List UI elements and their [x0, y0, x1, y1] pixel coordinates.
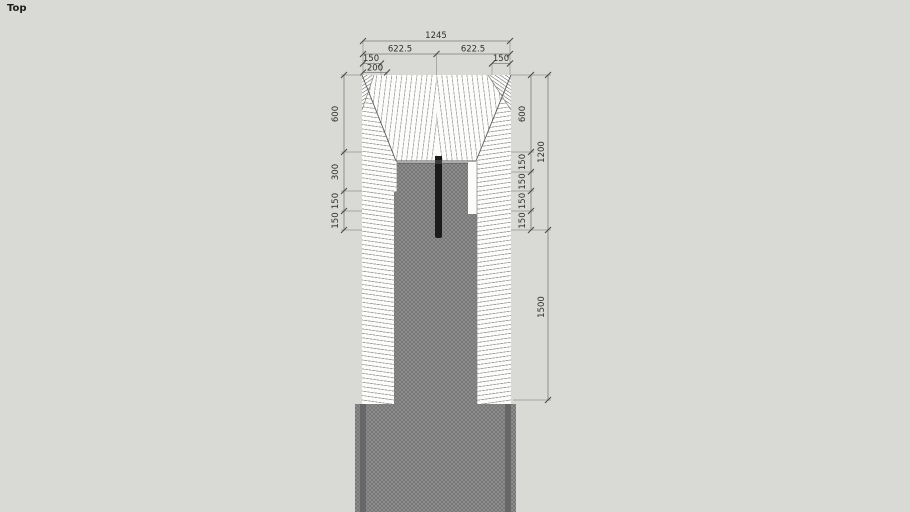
dim-left-600: 600 — [331, 106, 341, 122]
dim-half-left: 622.5 — [388, 45, 412, 55]
structure-edges — [362, 75, 511, 404]
dim-left-150a: 150 — [331, 193, 341, 209]
dim-right-1200: 1200 — [537, 141, 547, 163]
dim-edge-left-150: 150 — [363, 54, 379, 64]
dim-right-150d: 150 — [518, 212, 528, 228]
dim-right-150c: 150 — [518, 193, 528, 209]
viewport-canvas[interactable]: Top 1245 622.5 — [0, 0, 910, 512]
right-dimensions: 600 150 150 150 150 1200 1500 — [511, 72, 551, 403]
dim-right-150b: 150 — [518, 173, 528, 189]
dim-left-300: 300 — [331, 164, 341, 180]
dim-right-600: 600 — [518, 106, 528, 122]
dim-right-150a: 150 — [518, 154, 528, 170]
left-dimensions: 600 300 150 150 — [331, 72, 362, 233]
dim-total-width: 1245 — [425, 31, 447, 41]
annotation-overlay: 1245 622.5 622.5 150 200 150 600 300 150… — [0, 0, 910, 512]
dim-edge-right-150: 150 — [493, 54, 509, 64]
dim-left-150b: 150 — [331, 212, 341, 228]
dim-edge-left-200: 200 — [367, 64, 383, 74]
top-dimensions: 1245 622.5 622.5 150 200 150 — [360, 31, 513, 76]
dim-right-1500: 1500 — [537, 296, 547, 318]
dim-half-right: 622.5 — [461, 45, 485, 55]
